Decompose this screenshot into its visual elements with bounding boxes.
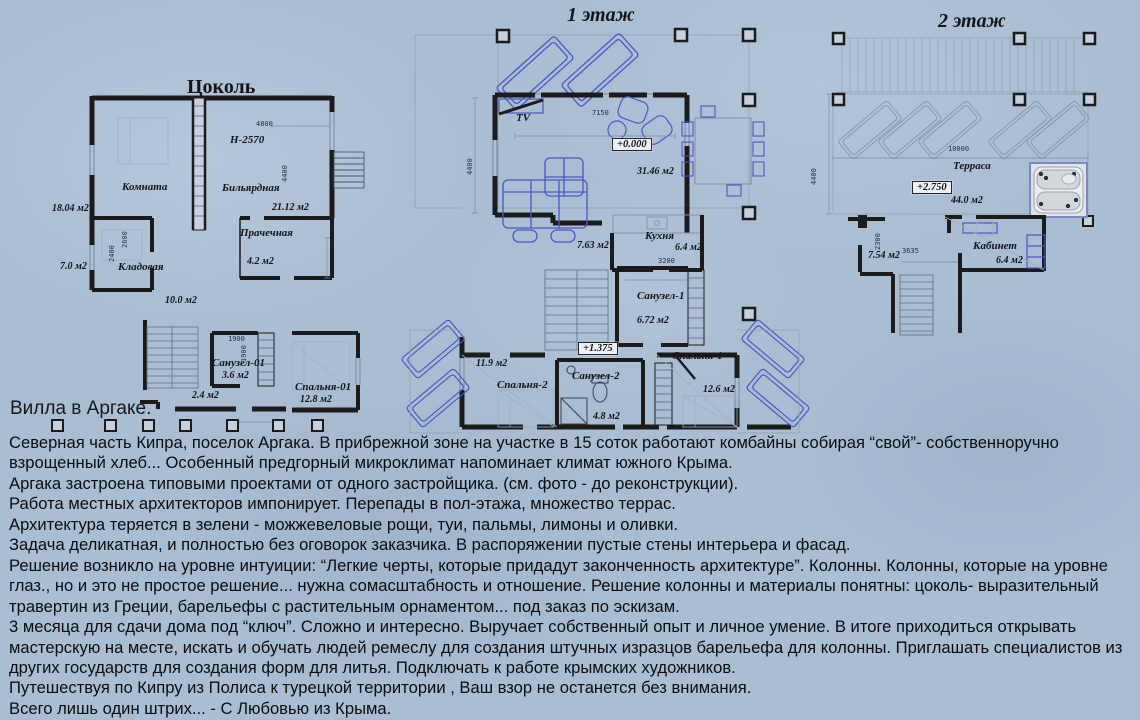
dim-floor2-hall-v: 2300 (874, 233, 882, 250)
elevation-mark-0000: +0.000 (612, 138, 652, 151)
text-line: Задача деликатная, и полностью без огово… (9, 535, 1134, 555)
floor1-title: 1 этаж (567, 4, 635, 27)
area-kladovaya: 7.0 м2 (60, 261, 87, 272)
text-line: Работа местных архитекторов импонирует. … (9, 494, 1134, 514)
area-sanuzel-2: 4.8 м2 (593, 411, 620, 422)
text-line: других государств для создания форм для … (9, 658, 1134, 678)
dim-floor1-height: 4400 (466, 158, 474, 175)
area-kitchen: 6.4 м2 (675, 242, 702, 253)
label-kabinet: Кабинет (973, 240, 1017, 252)
label-spalnya-01: Спальня-01 (295, 381, 351, 393)
area-basement-hall: 10.0 м2 (165, 295, 197, 306)
text-line: взрощенный хлеб... Особенный предгорный … (9, 453, 1134, 473)
area-tambur: 2.4 м2 (192, 390, 219, 401)
label-spalnya-2: Спальня-2 (497, 379, 548, 391)
basement-title: Цоколь (187, 76, 255, 99)
text-line: Северная часть Кипра, поселок Аргака. В … (9, 433, 1134, 453)
page-caption: Вилла в Аргаке. (10, 398, 151, 420)
dim-floor1-width: 7150 (592, 109, 609, 117)
label-prachechnaya: Прачечная (240, 227, 293, 239)
area-living: 31.46 м2 (637, 166, 674, 177)
area-floor2-hall: 7.54 м2 (868, 250, 900, 261)
dim-floor2-height: 4400 (810, 168, 818, 185)
text-line: травертин из Греции, барельефы с растите… (9, 597, 1134, 617)
dim-floor2-hall: 3635 (902, 247, 919, 255)
text-line: Аргака застроена типовыми проектами от о… (9, 474, 1134, 494)
area-komnata: 18.04 м2 (52, 203, 89, 214)
area-kabinet: 6.4 м2 (996, 255, 1023, 266)
description-text: Северная часть Кипра, поселок Аргака. В … (9, 433, 1134, 719)
dim-kitchen: 3200 (658, 257, 675, 265)
label-spalnya-1: Спальня-1 (672, 350, 723, 362)
dim-basement-width: 4800 (256, 120, 273, 128)
floor2-title: 2 этаж (938, 10, 1006, 33)
text-line: Всего лишь один штрих... - С Любовью из … (9, 699, 1134, 719)
villa-presentation-page: { "caption": "Вилла в Аргаке.", "body_li… (0, 0, 1140, 720)
dim-basement-height: 4400 (281, 165, 289, 182)
elevation-mark-2750: +2.750 (912, 181, 952, 194)
label-sanuzel-2: Санузел-2 (572, 370, 619, 382)
dim-kladovaya-2: 2400 (108, 245, 116, 262)
area-sanuzel-01: 3.6 м2 (222, 370, 249, 381)
text-line: Архитектура теряется в зелени - можжевел… (9, 515, 1134, 535)
area-spalnya-01: 12.8 м2 (300, 394, 332, 405)
elevation-mark-1375: +1.375 (578, 342, 618, 355)
dim-sanuzel01-w: 1900 (228, 335, 245, 343)
label-sanuzel-01: Санузел-01 (212, 357, 265, 369)
label-basement-mark: Н-2570 (230, 134, 264, 146)
dim-floor2-width: 10000 (948, 145, 969, 153)
label-sanuzel-1: Санузел-1 (637, 290, 684, 302)
label-bilyardnaya: Бильярдная (222, 182, 280, 194)
label-kladovaya: Кладовая (118, 261, 164, 273)
area-sanuzel-1: 6.72 м2 (637, 315, 669, 326)
text-line: Путешествуя по Кипру из Полиса к турецко… (9, 678, 1134, 698)
label-komnata: Комната (122, 181, 167, 193)
text-line: глаз., но и это не простое решение... ну… (9, 576, 1134, 596)
area-floor1-terrace: 11.9 м2 (476, 358, 507, 369)
dim-kladovaya-1: 2600 (121, 231, 129, 248)
text-line: Решение возникло на уровне интуиции: “Ле… (9, 556, 1134, 576)
text-line: мастерскую на месте, искать и обучать лю… (9, 638, 1134, 658)
area-floor1-hall: 7.63 м2 (577, 240, 609, 251)
label-kitchen: Кухня (645, 230, 674, 242)
text-line: 3 месяца для сдачи дома под “ключ”. Слож… (9, 617, 1134, 637)
label-tv: TV (516, 112, 530, 124)
area-bilyardnaya: 21.12 м2 (272, 202, 309, 213)
area-terrasa: 44.0 м2 (951, 195, 983, 206)
label-terrasa: Терраса (953, 160, 991, 172)
area-prachechnaya: 4.2 м2 (247, 256, 274, 267)
area-spalnya-1: 12.6 м2 (703, 384, 735, 395)
